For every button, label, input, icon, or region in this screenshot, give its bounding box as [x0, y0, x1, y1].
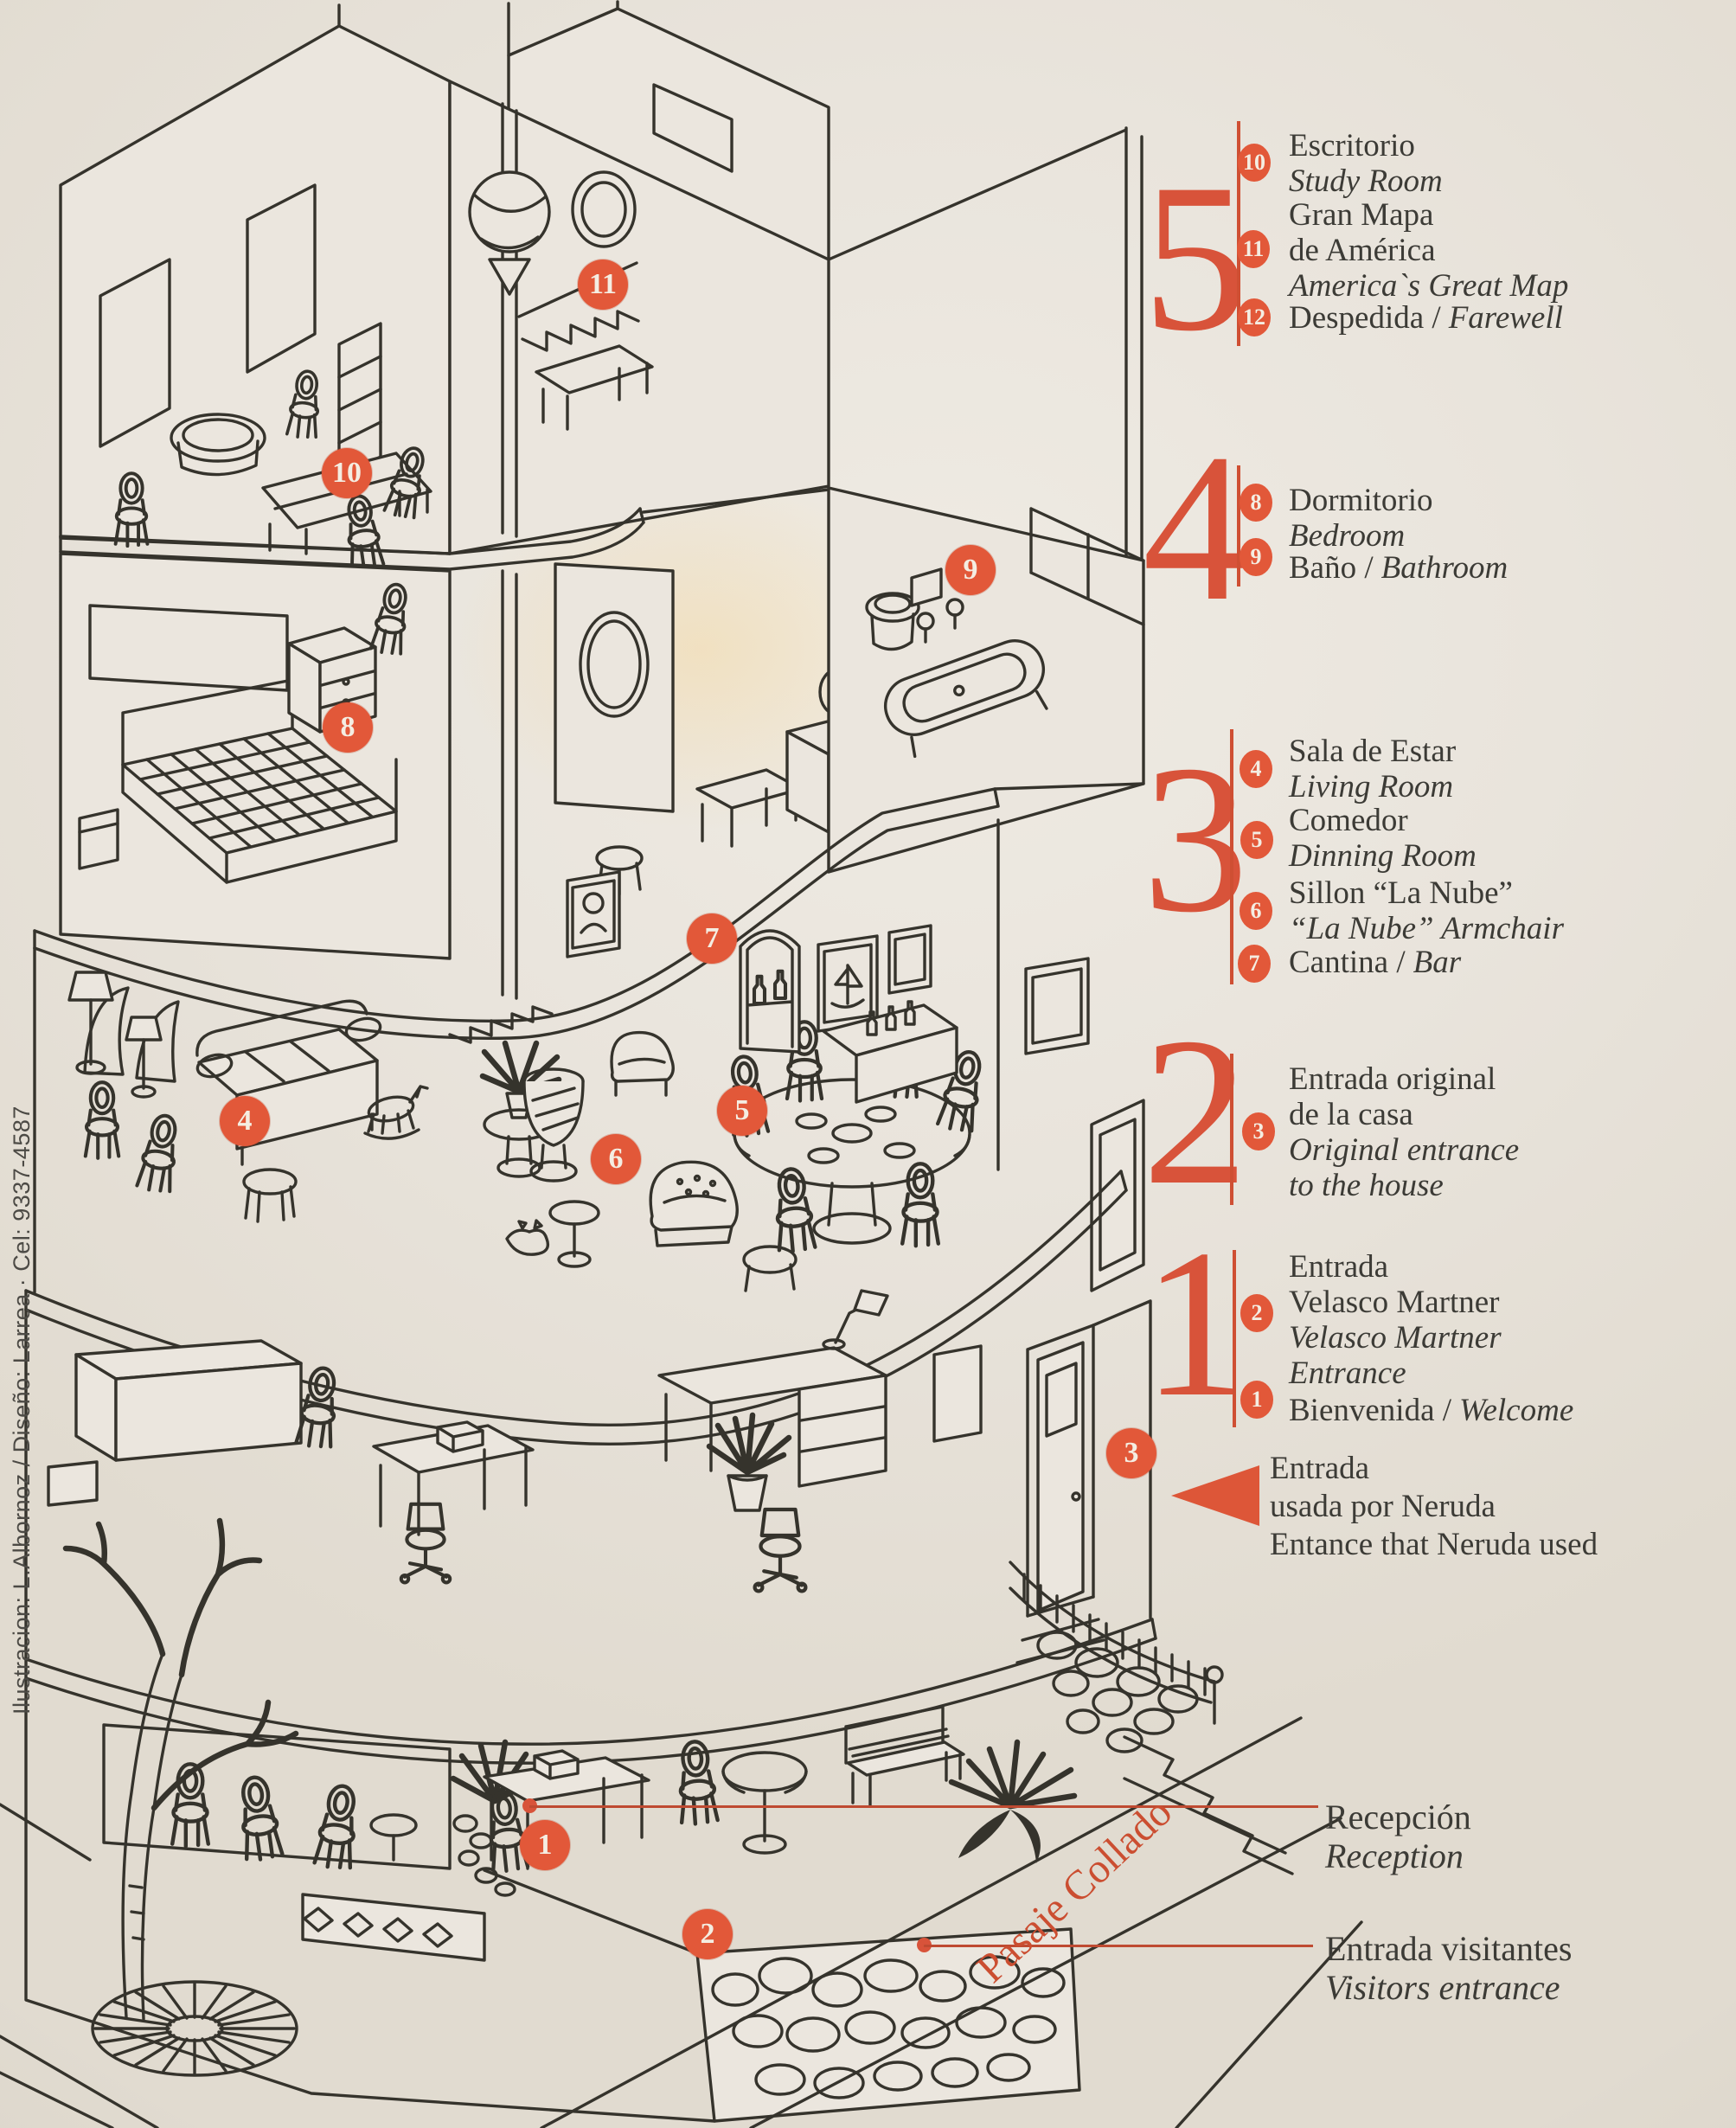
legend-marker-4: 4 [1240, 750, 1272, 788]
legend-marker-2: 2 [1240, 1294, 1273, 1332]
legend-divider-3 [1230, 729, 1233, 984]
label-es: Comedor [1289, 803, 1477, 838]
legend-marker-10: 10 [1238, 144, 1271, 182]
label-en: to the house [1289, 1168, 1519, 1203]
map-marker-10: 10 [322, 448, 372, 498]
legend-item-neruda-entrance: Entrada usada por Neruda Entance that Ne… [1270, 1450, 1598, 1564]
floor-number-4: 4 [1109, 421, 1282, 633]
label-es: usada por Neruda [1270, 1488, 1598, 1526]
legend-item-dining-room: Comedor Dinning Room [1289, 803, 1477, 874]
map-marker-6: 6 [591, 1134, 641, 1184]
map-marker-9: 9 [945, 545, 996, 595]
map-marker-8: 8 [323, 702, 373, 753]
legend-item-original-entrance: Entrada original de la casa Original ent… [1289, 1061, 1519, 1203]
label-es: de América [1289, 233, 1568, 268]
legend-divider-4 [1237, 465, 1240, 586]
label-en: Original entrance [1289, 1132, 1519, 1168]
legend-item-bar: Cantina /Bar [1289, 945, 1461, 980]
label-en: America`s Great Map [1289, 268, 1568, 304]
label-en: Dinning Room [1289, 838, 1477, 874]
label-es: de la casa [1289, 1097, 1519, 1132]
legend-marker-9: 9 [1240, 538, 1272, 576]
label-es: Entrada [1289, 1249, 1502, 1285]
reception-leader-line [529, 1805, 1318, 1808]
legend-item-study-room: Escritorio Study Room [1289, 128, 1443, 199]
legend-item-velasco-martner: Entrada Velasco Martner Velasco Martner … [1289, 1249, 1502, 1391]
legend-divider-1 [1233, 1250, 1236, 1427]
legend-item-great-map: Gran Mapa de América America`s Great Map [1289, 197, 1568, 304]
label-es: Sala de Estar [1289, 734, 1456, 769]
legend-item-welcome: Bienvenida /Welcome [1289, 1393, 1573, 1428]
legend-marker-11: 11 [1237, 230, 1270, 268]
legend-marker-3: 3 [1242, 1112, 1275, 1151]
label-en: Study Room [1289, 163, 1443, 199]
label-en: Entrance [1289, 1356, 1502, 1391]
label-es: Velasco Martner [1289, 1285, 1502, 1320]
label-en: Bedroom [1289, 518, 1432, 554]
label-en: Entance that Neruda used [1270, 1526, 1598, 1564]
legend-item-la-nube: Sillon “La Nube” “La Nube” Armchair [1289, 875, 1564, 946]
legend-item-bathroom: Baño /Bathroom [1289, 550, 1508, 586]
map-marker-2: 2 [682, 1909, 733, 1959]
label-es: Gran Mapa [1289, 197, 1568, 233]
label-en: Reception [1325, 1836, 1471, 1875]
map-marker-5: 5 [717, 1086, 767, 1136]
label-mixed: Baño /Bathroom [1289, 550, 1508, 586]
floor-number-2: 2 [1109, 1005, 1282, 1217]
map-marker-11: 11 [578, 260, 628, 310]
map-marker-7: 7 [687, 913, 737, 964]
label-es: Entrada [1270, 1450, 1598, 1488]
label-es: Entrada original [1289, 1061, 1519, 1097]
label-es: Dormitorio [1289, 483, 1432, 518]
legend-marker-8: 8 [1240, 484, 1272, 522]
label-en: Velasco Martner [1289, 1320, 1502, 1356]
label-mixed: Bienvenida /Welcome [1289, 1393, 1573, 1428]
label-mixed: Cantina /Bar [1289, 945, 1461, 980]
legend-item-farewell: Despedida /Farewell [1289, 300, 1563, 336]
poster: 1 2 3 4 5 6 7 8 9 10 11 5 10 11 12 Escri… [0, 0, 1736, 2128]
label-es: Recepción [1325, 1798, 1471, 1836]
neruda-entrance-arrow [1171, 1465, 1259, 1526]
illustration-credits: Ilustracion: L.Albornoz / Diseño: Larrea… [9, 1106, 35, 1715]
label-es: Escritorio [1289, 128, 1443, 163]
label-en: Visitors entrance [1325, 1968, 1572, 2007]
callout-reception: Recepción Reception [1325, 1798, 1471, 1875]
label-en: “La Nube” Armchair [1289, 911, 1564, 946]
legend-divider-2 [1230, 1054, 1233, 1205]
label-es: Sillon “La Nube” [1289, 875, 1564, 911]
map-marker-1: 1 [520, 1820, 570, 1870]
callout-visitors-entrance: Entrada visitantes Visitors entrance [1325, 1929, 1572, 2007]
label-mixed: Despedida /Farewell [1289, 300, 1563, 336]
legend-item-living-room: Sala de Estar Living Room [1289, 734, 1456, 804]
legend-marker-1: 1 [1240, 1381, 1273, 1419]
legend-marker-7: 7 [1238, 945, 1271, 983]
map-marker-4: 4 [220, 1096, 270, 1146]
legend-item-bedroom: Dormitorio Bedroom [1289, 483, 1432, 554]
legend-marker-5: 5 [1240, 821, 1273, 859]
label-en: Living Room [1289, 769, 1456, 804]
label-es: Entrada visitantes [1325, 1929, 1572, 1968]
legend-marker-6: 6 [1240, 892, 1272, 930]
legend-marker-12: 12 [1238, 298, 1271, 337]
